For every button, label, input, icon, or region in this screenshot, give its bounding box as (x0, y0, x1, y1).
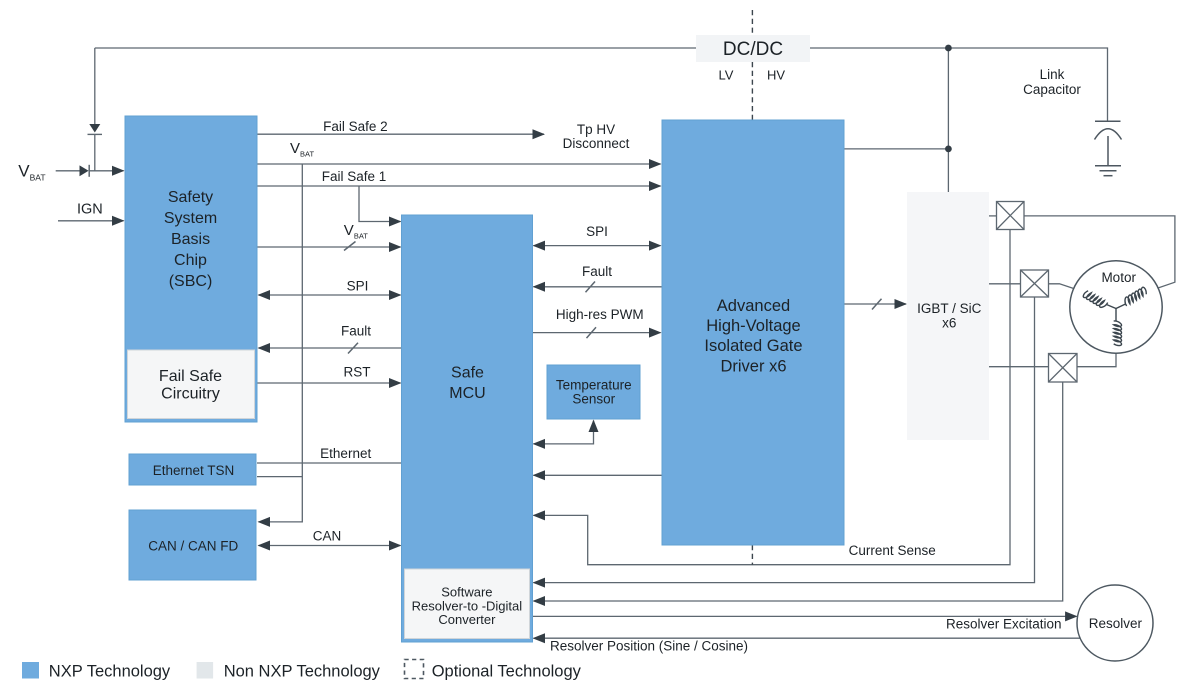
svg-text:IGBT / SiC: IGBT / SiC (917, 301, 982, 316)
svg-text:Tp HV: Tp HV (577, 122, 615, 137)
svg-text:Current Sense: Current Sense (849, 543, 936, 558)
svg-text:Capacitor: Capacitor (1023, 82, 1081, 97)
svg-text:CAN / CAN FD: CAN / CAN FD (148, 539, 238, 554)
svg-text:Resolver Excitation: Resolver Excitation (946, 617, 1062, 632)
svg-text:DC/DC: DC/DC (723, 39, 783, 60)
svg-text:System: System (164, 210, 217, 227)
svg-text:Safe: Safe (451, 365, 484, 382)
svg-text:Resolver Position (Sine / Cosi: Resolver Position (Sine / Cosine) (550, 639, 748, 654)
svg-text:Non NXP Technology: Non NXP Technology (224, 662, 381, 680)
svg-text:Advanced: Advanced (717, 297, 790, 315)
svg-text:Fault: Fault (582, 264, 612, 279)
svg-text:CAN: CAN (313, 529, 342, 544)
svg-text:Sensor: Sensor (572, 391, 615, 406)
svg-text:Fault: Fault (341, 323, 371, 338)
svg-text:Ethernet: Ethernet (320, 446, 371, 461)
svg-text:Driver x6: Driver x6 (720, 357, 786, 375)
svg-text:Resolver: Resolver (1089, 616, 1143, 631)
svg-text:Optional Technology: Optional Technology (432, 662, 582, 680)
svg-text:NXP Technology: NXP Technology (49, 662, 171, 680)
svg-text:Ethernet TSN: Ethernet TSN (153, 463, 235, 478)
svg-text:Fail Safe 2: Fail Safe 2 (323, 119, 388, 134)
svg-text:High-res PWM: High-res PWM (556, 307, 644, 322)
svg-text:RST: RST (344, 364, 371, 379)
svg-text:Safety: Safety (168, 189, 213, 206)
svg-text:Isolated Gate: Isolated Gate (704, 337, 802, 355)
svg-text:(SBC): (SBC) (169, 273, 213, 290)
svg-text:Software: Software (441, 584, 492, 599)
svg-text:IGN: IGN (77, 202, 103, 218)
svg-text:Circuitry: Circuitry (161, 386, 220, 403)
svg-text:LV: LV (719, 68, 734, 83)
svg-text:Motor: Motor (1101, 270, 1136, 285)
svg-text:Fail Safe 1: Fail Safe 1 (322, 169, 387, 184)
svg-text:High-Voltage: High-Voltage (706, 317, 800, 335)
svg-text:x6: x6 (942, 315, 956, 330)
svg-text:Chip: Chip (174, 252, 207, 269)
svg-text:Fail Safe: Fail Safe (159, 368, 222, 385)
svg-text:Converter: Converter (438, 612, 496, 627)
svg-text:Link: Link (1040, 67, 1065, 82)
svg-text:SPI: SPI (347, 279, 369, 294)
svg-text:Basis: Basis (171, 231, 210, 248)
svg-text:Disconnect: Disconnect (563, 136, 630, 151)
svg-text:SPI: SPI (586, 224, 608, 239)
svg-text:MCU: MCU (449, 385, 485, 402)
svg-text:HV: HV (767, 68, 785, 83)
